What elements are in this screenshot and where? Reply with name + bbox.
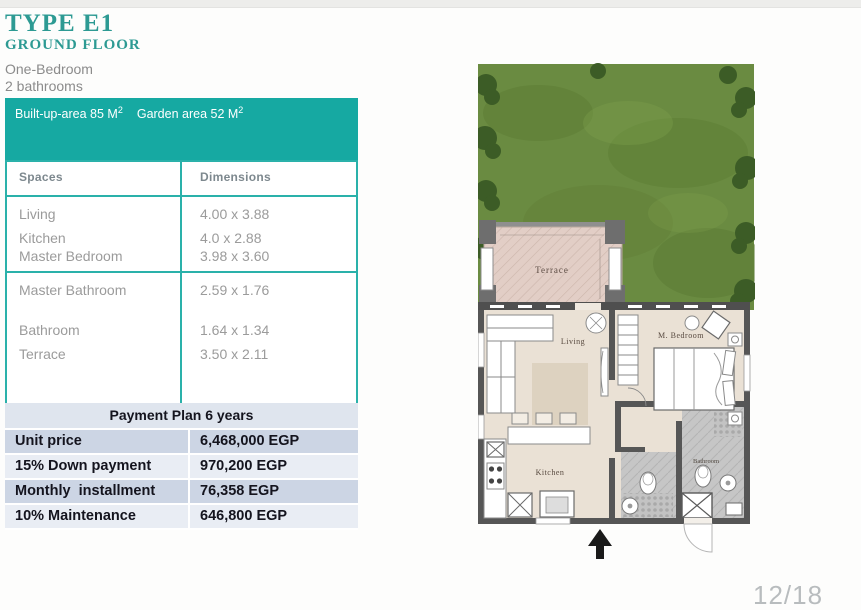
living-window [478,333,484,367]
kitchen-label: Kitchen [536,468,565,477]
spaces-table: Spaces Dimensions Living Kitchen Master … [5,160,358,405]
floor-plan-drawing: Terrace [478,63,755,563]
payment-plan-table: Payment Plan 6 years Unit price 6,468,00… [5,403,358,530]
terrace-planter-left [481,248,493,290]
kitchen-stool [536,413,552,424]
payment-value: 646,800 EGP [190,505,358,528]
page-subtitle: GROUND FLOOR [5,37,141,54]
space-name: Terrace [19,345,180,363]
spaces-table-header: Spaces Dimensions [7,162,356,197]
payment-label: Unit price [5,430,190,453]
kitchen-stove [487,463,504,489]
entrance-opening [684,518,712,524]
space-name: Kitchen [19,229,180,247]
bedroom-label: M. Bedroom [658,331,704,340]
kitchen-island [508,427,590,444]
kitchen-stool [560,413,576,424]
payment-value: 6,468,000 EGP [190,430,358,453]
bedroom-wardrobe [618,315,638,385]
bedroom-bed [654,348,736,410]
dimensions-header: Dimensions [182,162,356,195]
entrance-door-arc [684,524,712,552]
table-row-group-2: Master Bathroom Bathroom Terrace 2.59 x … [7,273,356,403]
space-name: Master Bedroom [19,247,180,265]
unit-type-line1: One-Bedroom [5,61,93,77]
guest-toilet [640,472,656,494]
payment-row: 10% Maintenance 646,800 EGP [5,505,358,530]
living-label: Living [561,337,585,346]
tv-console [601,348,608,396]
payment-row: Monthly installment 76,358 EGP [5,480,358,505]
payment-label: 10% Maintenance [5,505,190,528]
garden-area-label: Garden area 52 M [137,107,238,121]
spaces-header: Spaces [7,162,182,195]
space-dimension: 3.98 x 3.60 [200,247,356,265]
terrace-label: Terrace [535,265,569,275]
kitchen-stool [512,413,528,424]
payment-label: Monthly installment [5,480,190,503]
page-number: 12/18 [753,580,823,611]
garden-area-sup: 2 [238,105,243,115]
building-north-wall [478,302,750,311]
payment-value: 970,200 EGP [190,455,358,478]
table-row-group-1: Living Kitchen Master Bedroom 4.00 x 3.8… [7,197,356,273]
terrace-planter-right [609,248,621,290]
payment-row: 15% Down payment 970,200 EGP [5,455,358,480]
space-dimension: 4.0 x 2.88 [200,229,356,247]
bedroom-window [744,355,750,391]
payment-value: 76,358 EGP [190,480,358,503]
bathroom-label: Bathroom [693,458,719,465]
north-arrow [588,529,612,559]
building-interior: Living [478,310,750,552]
payment-plan-title: Payment Plan 6 years [5,403,358,430]
terrace-door-opening [575,303,601,310]
built-up-area-label: Built-up-area 85 M [15,107,118,121]
bedroom-plant [685,316,699,330]
terrace: Terrace [479,220,625,310]
space-dimension: 2.59 x 1.76 [200,281,356,299]
payment-label: 15% Down payment [5,455,190,478]
top-window-bar [0,0,861,8]
space-name: Living [19,205,180,223]
slide: TYPE E1 GROUND FLOOR One-Bedroom 2 bathr… [0,0,861,610]
kitchen-window [478,415,484,439]
south-window [536,518,570,524]
space-dimension: 1.64 x 1.34 [200,321,356,339]
entrance [682,493,712,552]
space-dimension: 3.50 x 2.11 [200,345,356,363]
space-dimension: 4.00 x 3.88 [200,205,356,223]
space-name: Bathroom [19,321,180,339]
built-up-area-sup: 2 [118,105,123,115]
space-name: Master Bathroom [19,281,180,299]
area-banner: Built-up-area 85 M2Garden area 52 M2 [5,98,358,160]
bath-cabinet [726,503,742,515]
page-title: TYPE E1 [5,10,114,38]
master-toilet [695,465,711,487]
unit-type-line2: 2 bathrooms [5,78,83,94]
floor-plan: Terrace [478,63,755,563]
payment-row: Unit price 6,468,000 EGP [5,430,358,455]
